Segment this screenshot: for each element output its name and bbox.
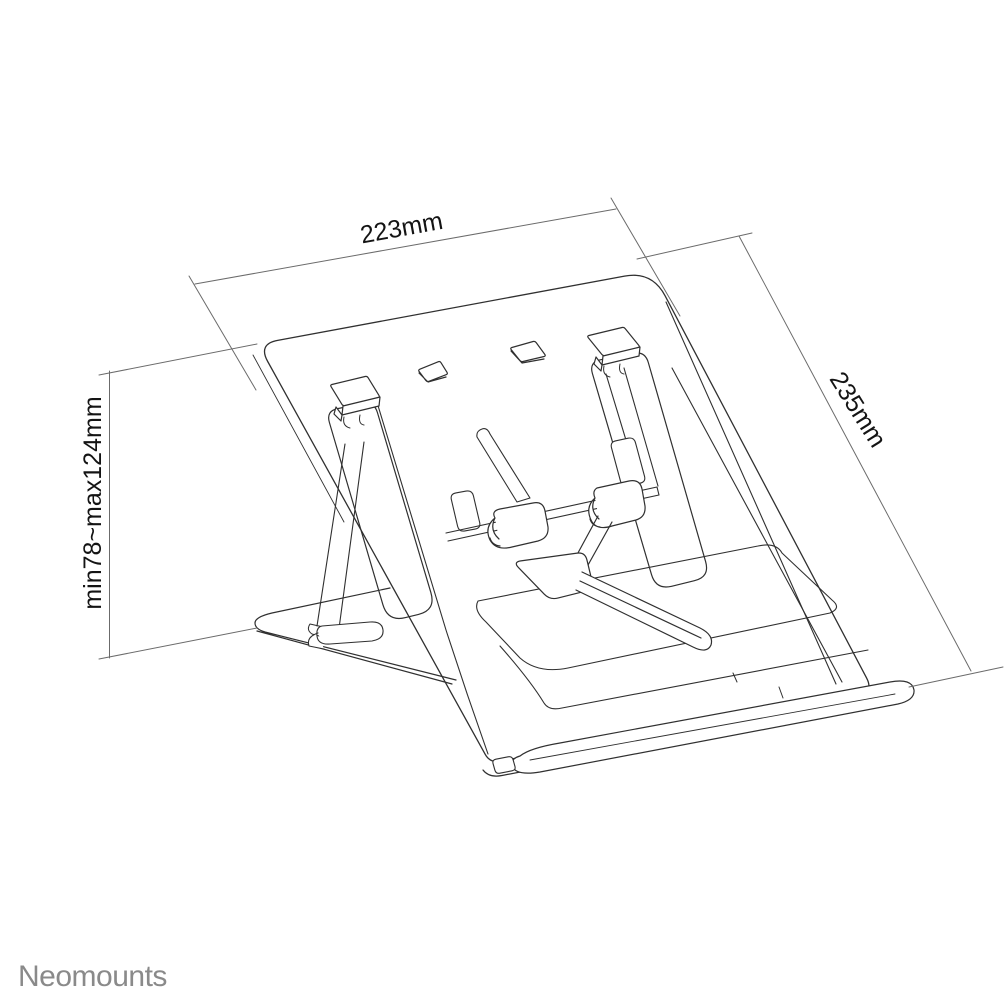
svg-text:Neomounts: Neomounts <box>18 960 167 993</box>
svg-text:min78~max124mm: min78~max124mm <box>79 396 107 609</box>
svg-text:223mm: 223mm <box>358 207 445 249</box>
svg-text:235mm: 235mm <box>824 367 892 453</box>
